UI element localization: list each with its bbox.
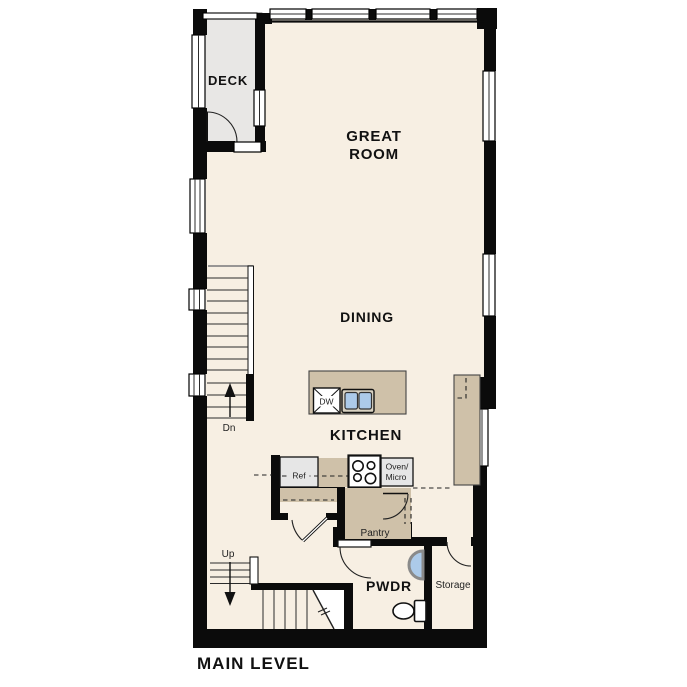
dishwasher: DW (314, 388, 341, 413)
deck-label: DECK (208, 73, 248, 88)
great-room-label-line2: ROOM (349, 146, 399, 163)
deck-door-threshold (234, 142, 261, 152)
window (376, 9, 430, 19)
range (349, 456, 381, 488)
stair-newel (250, 557, 258, 584)
oven-micro: Oven/ Micro (381, 458, 413, 486)
kitchen-label: KITCHEN (330, 427, 402, 444)
counter-segment (318, 458, 349, 487)
kitchen-sink (342, 390, 374, 413)
oven-label-line1: Oven/ (386, 462, 409, 472)
window (192, 35, 205, 108)
storage-label: Storage (435, 580, 470, 591)
floor-plan: DW Ref Oven/ Micro (0, 0, 687, 687)
great-room-label-line1: GREAT (346, 128, 401, 145)
deck-railing (203, 13, 257, 19)
window (189, 374, 205, 396)
window (189, 289, 205, 310)
oven-label-line2: Micro (386, 472, 407, 482)
stairs-up-label: Up (222, 549, 235, 560)
page-title: MAIN LEVEL (197, 654, 310, 673)
window (483, 71, 495, 141)
powder-sink (409, 551, 423, 579)
window (254, 90, 265, 126)
stairs-down-label: Dn (223, 423, 236, 434)
window (312, 9, 369, 19)
pantry-label: Pantry (361, 528, 390, 539)
window (437, 9, 477, 19)
dishwasher-label: DW (319, 397, 333, 407)
toilet (393, 601, 426, 622)
window (483, 254, 495, 316)
dining-label: DINING (340, 309, 394, 325)
refrigerator-label: Ref (292, 471, 306, 481)
right-counter (454, 375, 480, 485)
window (270, 9, 306, 19)
stair-rail (248, 266, 254, 376)
powder-label: PWDR (366, 578, 412, 594)
floor-plan-drawing: DW Ref Oven/ Micro (0, 0, 687, 687)
window (190, 179, 205, 233)
